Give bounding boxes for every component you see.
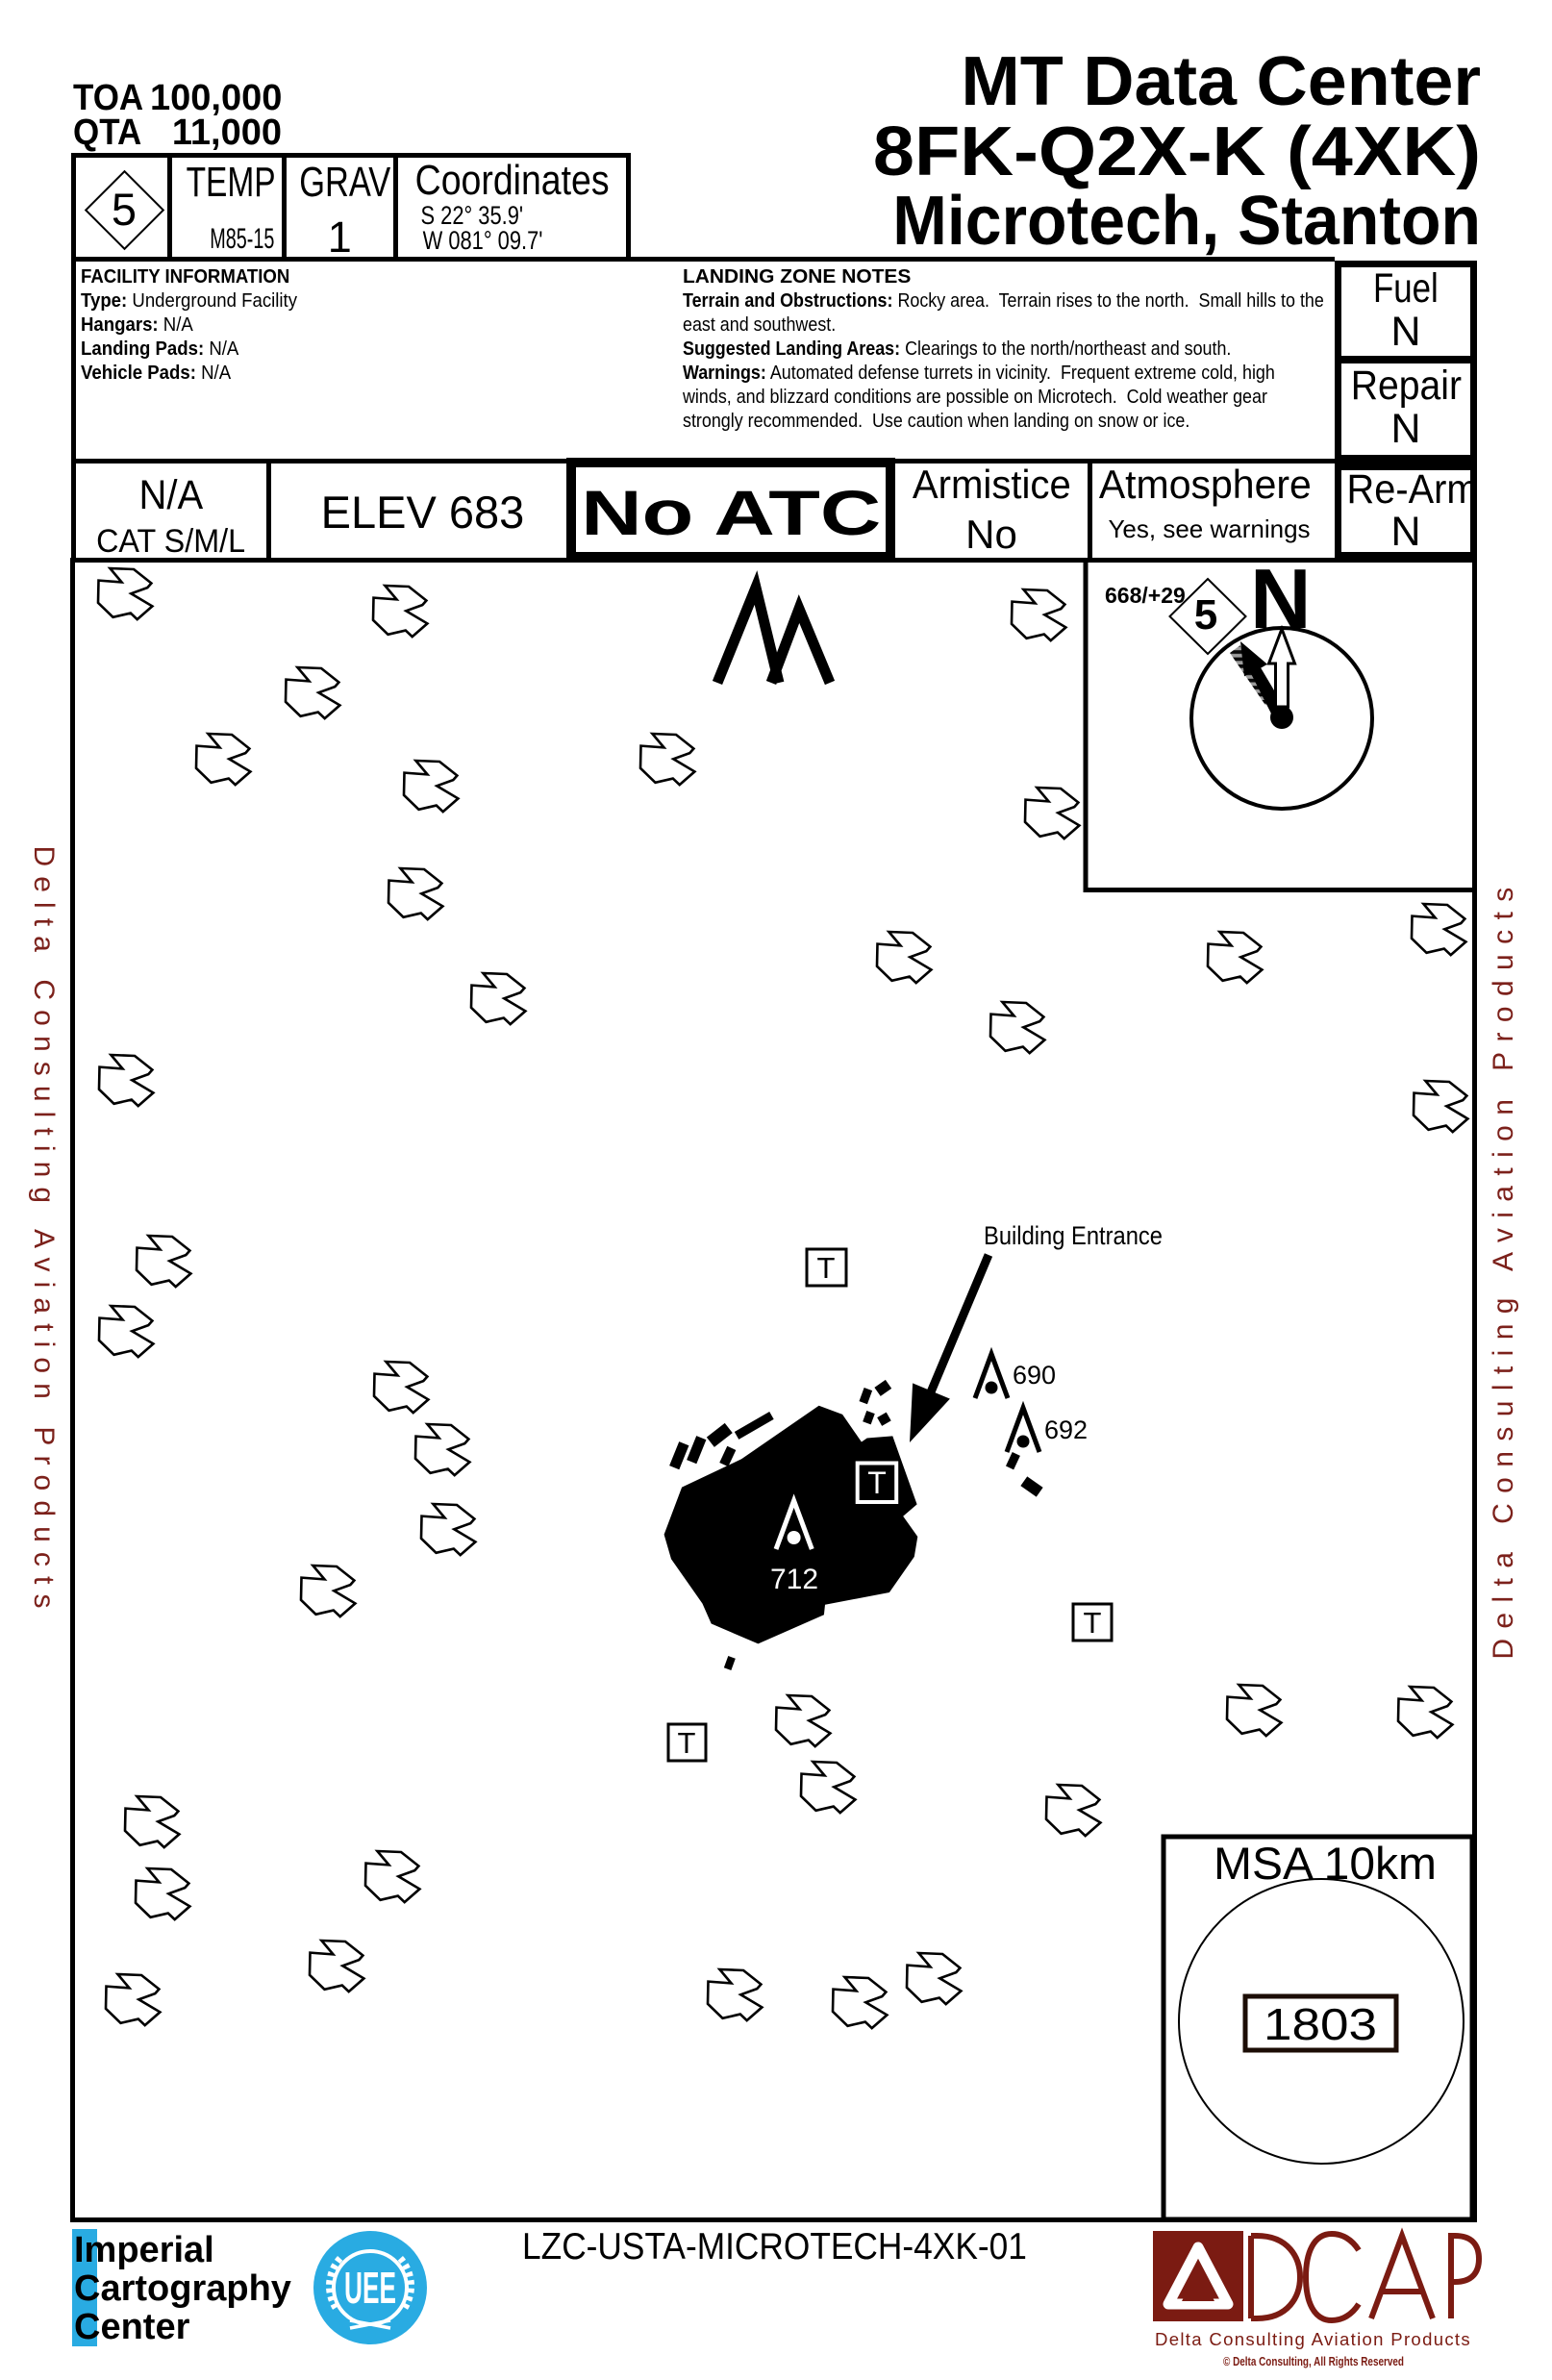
svg-text:690: 690	[1013, 1361, 1056, 1390]
svg-text:668/+29: 668/+29	[1105, 583, 1186, 608]
svg-text:T: T	[867, 1466, 887, 1500]
svg-text:T: T	[1084, 1606, 1102, 1640]
svg-text:692: 692	[1044, 1415, 1088, 1444]
svg-text:MSA 10km: MSA 10km	[1214, 1838, 1437, 1889]
svg-text:712: 712	[770, 1564, 818, 1595]
svg-text:T: T	[678, 1726, 696, 1760]
svg-text:© Delta Consulting, All Rights: © Delta Consulting, All Rights Reserved	[1223, 2354, 1404, 2368]
svg-text:5: 5	[1194, 591, 1217, 639]
svg-text:Building Entrance: Building Entrance	[984, 1221, 1163, 1250]
svg-text:1803: 1803	[1264, 1999, 1377, 2049]
svg-text:T: T	[817, 1251, 836, 1285]
svg-text:UEE: UEE	[344, 2263, 396, 2313]
svg-text:Delta Consulting Aviation Prod: Delta Consulting Aviation Products	[1155, 2329, 1471, 2349]
